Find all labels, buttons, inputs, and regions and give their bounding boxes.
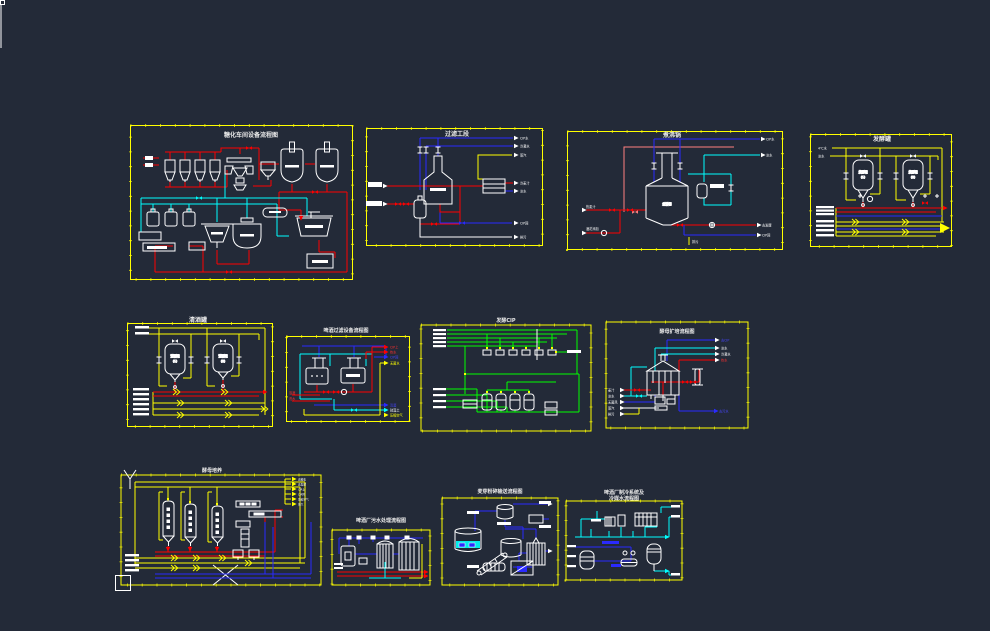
svg-text:清酒罐: 清酒罐	[170, 353, 179, 358]
panel-filtration: 啤酒过滤设备流程图 CIP上 热水 CIP回 无菌水 清酒 硅藻土 压缩空气 浊…	[284, 324, 412, 428]
p8-title: 酵母扩培流程图	[659, 328, 694, 335]
p6-title: 啤酒过滤设备流程图	[323, 327, 368, 334]
pump-set	[621, 551, 637, 566]
svg-text:(2): (2)	[911, 175, 915, 179]
p2-drawing: 过滤工段 CIP水 冷凝水 蒸汽 冷麦汁 冰水 CIP回 排污	[364, 126, 546, 248]
bbt-1: 清酒罐 (1)	[165, 344, 185, 382]
p5-red-piping	[153, 380, 263, 396]
svg-text:冰水: 冰水	[520, 189, 527, 194]
wort-tank	[424, 156, 452, 204]
svg-text:CIP回: CIP回	[520, 222, 528, 226]
p6-drawing: 啤酒过滤设备流程图 CIP上 热水 CIP回 无菌水 清酒 硅藻土 压缩空气 浊…	[284, 324, 412, 428]
p9-title: 酵母培养	[202, 467, 222, 474]
p11-drawing: 麦芽粉碎输送流程图	[439, 485, 561, 587]
fermenter-1: 发酵罐 (1)	[853, 160, 873, 202]
condenser-unit	[635, 513, 657, 526]
svg-text:发酵罐: 发酵罐	[858, 169, 867, 174]
p3-title: 煮沸锅	[662, 131, 681, 139]
p10-red-piping	[337, 572, 427, 576]
svg-text:冰水: 冰水	[766, 153, 773, 158]
p3-fittings	[582, 137, 766, 237]
p7-title: 发酵CIP	[495, 317, 516, 324]
p8-drawing: 酵母扩培流程图 去CIP 冰水 冷凝水 热水 麦汁 冰水 无菌风 蒸汽 排污 去…	[603, 319, 751, 431]
clarifier-2	[399, 539, 419, 571]
p4-yellow-piping	[830, 148, 944, 236]
p3-steam-condensate-line	[624, 147, 734, 212]
ucs-corner-mark	[0, 0, 20, 60]
svg-text:发酵罐: 发酵罐	[908, 169, 917, 174]
p11-title: 麦芽粉碎输送流程图	[477, 488, 522, 495]
p1-title: 糖化车间设备流程图	[224, 131, 278, 139]
p2-steam-line	[478, 155, 512, 179]
svg-text:(2): (2)	[221, 359, 225, 363]
svg-text:蒸汽: 蒸汽	[298, 503, 304, 507]
svg-text:蒸汽: 蒸汽	[608, 406, 615, 411]
cip-vessels	[482, 394, 534, 410]
svg-text:CIP回: CIP回	[762, 234, 770, 238]
svg-text:麦汁: 麦汁	[608, 388, 615, 393]
svg-text:CIP回: CIP回	[390, 356, 398, 360]
control-box	[511, 561, 533, 575]
svg-text:热麦汁: 热麦汁	[586, 204, 596, 209]
p10-equipment	[341, 536, 419, 570]
svg-text:热水: 热水	[390, 350, 397, 355]
svg-text:CIP上: CIP上	[390, 345, 399, 350]
top-silo	[497, 505, 513, 520]
svg-text:去发酵: 去发酵	[762, 223, 772, 228]
svg-text:冰水: 冰水	[818, 154, 825, 159]
svg-text:冷凝水: 冷凝水	[520, 144, 530, 149]
heat-exchanger	[483, 179, 505, 193]
panel-yeast-prop: 酵母扩培流程图 去CIP 冰水 冷凝水 热水 麦汁 冰水 无菌风 蒸汽 排污 去…	[603, 319, 751, 431]
svg-text:压缩空气: 压缩空气	[390, 413, 404, 418]
svg-text:CIP水: CIP水	[766, 137, 775, 142]
svg-text:(1): (1)	[173, 359, 177, 363]
p4-title: 发酵罐	[872, 135, 891, 143]
filter-2	[341, 358, 365, 383]
condenser	[697, 184, 724, 198]
p10-yellow-piping	[409, 544, 422, 578]
p3-drawing: 煮沸锅 煮沸锅 CIP水 冰水 热麦汁 酒花添加 去发酵 CIP回 排污	[564, 126, 790, 252]
svg-text:酒花添加: 酒花添加	[586, 226, 599, 231]
bbt-2: 清酒罐 (2)	[213, 344, 233, 380]
svg-text:冷凝水: 冷凝水	[721, 352, 731, 357]
panel-filter: 过滤工段 CIP水 冷凝水 蒸汽 冷麦汁 冰水 CIP回 排污	[364, 126, 546, 248]
p9-equipment	[233, 501, 281, 560]
p4-drawing: 发酵罐 发酵罐 (1) 发酵罐 (2) 4℃水 冰水	[806, 128, 958, 252]
svg-text:(1): (1)	[861, 175, 865, 179]
mid-tank	[501, 539, 521, 558]
receiver	[580, 551, 594, 569]
p5-labels	[133, 326, 149, 415]
svg-text:清酒: 清酒	[390, 403, 397, 408]
p11-equipment	[455, 505, 545, 576]
p5-title: 清酒罐	[189, 316, 207, 324]
p7-drawing: 发酵CIP	[417, 316, 595, 434]
svg-text:冰水: 冰水	[608, 394, 615, 399]
hot-water-tank-2	[316, 142, 338, 182]
p8-yellow-line	[623, 408, 639, 414]
svg-text:排污: 排污	[520, 235, 527, 240]
p12-drawing: 啤酒厂制冷系统及 冷媒水流程图	[561, 489, 685, 583]
p2-equipment	[366, 156, 505, 218]
mash-tun	[295, 212, 333, 236]
culture-column-2	[185, 504, 196, 546]
p3-labels: CIP水 冰水 热麦汁 酒花添加 去发酵 CIP回 排污	[586, 137, 775, 245]
steep-tank	[455, 528, 481, 552]
p2-labels: CIP水 冷凝水 蒸汽 冷麦汁 冰水 CIP回 排污	[520, 136, 530, 240]
panel-refrigeration: 啤酒厂制冷系统及 冷媒水流程图	[561, 489, 685, 583]
p9-yellow-piping	[135, 479, 305, 568]
separator	[647, 544, 661, 571]
p2-title: 过滤工段	[445, 130, 469, 138]
svg-text:CIP水: CIP水	[520, 136, 529, 141]
p9-drawing: 酵母培养 去糖化 去发	[115, 462, 325, 596]
p6-blue-piping	[302, 346, 386, 405]
svg-text:去污水: 去污水	[719, 409, 729, 414]
p8-labels: 去CIP 冰水 冷凝水 热水 麦汁 冰水 无菌风 蒸汽 排污 去污水	[608, 338, 731, 417]
culture-column-3	[212, 506, 223, 546]
svg-text:无菌风: 无菌风	[608, 400, 618, 405]
svg-text:压缩空气: 压缩空气	[298, 498, 309, 502]
svg-text:排污: 排污	[692, 239, 699, 244]
p3-wort-lines	[586, 210, 756, 233]
panel-brewhouse: 糖化车间设备流程图	[129, 124, 355, 282]
svg-text:CIP回: CIP回	[298, 493, 305, 497]
p6-fittings	[323, 345, 389, 417]
p8-blue-piping	[623, 340, 717, 411]
p12-labels	[567, 505, 680, 576]
p10-title: 啤酒厂污水处理流程图	[356, 517, 406, 524]
p10-drawing: 啤酒厂污水处理流程图	[329, 514, 433, 588]
hot-water-tank-1	[281, 142, 303, 182]
svg-text:硅藻土: 硅藻土	[390, 408, 400, 413]
p5-drawing: 清酒罐 清酒罐 (1) 清酒罐 (2)	[125, 316, 275, 430]
fermenter-2: 发酵罐 (2)	[903, 160, 923, 202]
svg-text:无菌水: 无菌水	[390, 361, 400, 366]
plate-cooler	[307, 254, 333, 268]
svg-text:蒸汽: 蒸汽	[520, 153, 527, 158]
conveyor	[477, 553, 507, 575]
panel-bbt: 清酒罐 清酒罐 (1) 清酒罐 (2)	[125, 316, 275, 430]
kettle-vessel: 煮沸锅	[646, 153, 688, 225]
svg-text:热水: 热水	[721, 358, 728, 363]
p12-title-line1: 啤酒厂制冷系统及	[604, 489, 644, 496]
svg-text:去CIP: 去CIP	[721, 338, 729, 343]
svg-text:冰水: 冰水	[721, 346, 728, 351]
p1-equipment	[139, 142, 338, 268]
sight-glass	[692, 369, 703, 385]
view-square-mark	[116, 576, 131, 591]
panel-fermenters: 发酵罐 发酵罐 (1) 发酵罐 (2) 4℃水 冰水	[806, 128, 958, 252]
p12-equipment	[580, 513, 661, 571]
p3-cip-line	[654, 139, 760, 182]
panel-milling: 麦芽粉碎输送流程图	[439, 485, 561, 587]
svg-text:CIP上: CIP上	[298, 488, 305, 492]
p2-blue-piping	[420, 138, 513, 223]
p8-cyan-piping	[623, 348, 717, 396]
svg-text:冷麦汁: 冷麦汁	[520, 181, 530, 186]
filter-1	[306, 358, 328, 384]
p4-labels: 4℃水 冰水	[816, 146, 834, 237]
svg-text:浊酒: 浊酒	[289, 390, 296, 395]
p1-drawing: 糖化车间设备流程图	[129, 124, 355, 282]
malt-hoppers	[165, 160, 220, 182]
p2-drain-line	[420, 218, 512, 237]
p4-fittings	[844, 154, 951, 235]
adjunct-tanks	[147, 209, 195, 226]
svg-text:排污: 排污	[608, 412, 615, 417]
svg-text:去发酵: 去发酵	[298, 483, 306, 487]
p7-label-blocks	[433, 329, 581, 408]
p6-cyan-piping	[300, 354, 386, 410]
p6-yellow-piping	[304, 363, 386, 415]
svg-text:煮沸锅: 煮沸锅	[662, 201, 671, 206]
svg-text:去糖化: 去糖化	[298, 478, 306, 482]
kettle	[233, 218, 261, 248]
whirlpool	[263, 208, 287, 217]
panel-kettle: 煮沸锅 煮沸锅 CIP水 冰水 热麦汁 酒花添加 去发酵 CIP回 排污	[564, 126, 790, 252]
panel-cip: 发酵CIP	[417, 316, 595, 434]
lauter-tun	[201, 224, 233, 248]
mill-unit	[225, 158, 253, 190]
svg-text:洗水: 洗水	[289, 396, 296, 401]
screen-unit	[261, 162, 275, 180]
p3-cip-return	[684, 225, 756, 235]
p12-title-line2: 冷媒水流程图	[609, 495, 639, 502]
panel-yeast-culture: 酵母培养 去糖化 去发	[115, 462, 325, 596]
view-y-mark	[124, 470, 136, 489]
culture-column-1	[163, 501, 174, 546]
svg-text:4℃水: 4℃水	[818, 146, 828, 151]
svg-text:清酒罐: 清酒罐	[218, 353, 227, 358]
panel-wastewater: 啤酒厂污水处理流程图	[329, 514, 433, 588]
cad-canvas[interactable]: 糖化车间设备流程图	[0, 0, 990, 631]
